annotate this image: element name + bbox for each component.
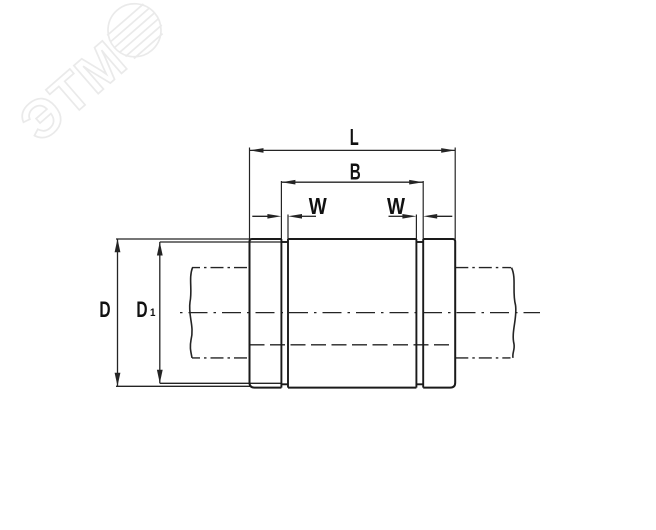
svg-text:W: W	[309, 193, 327, 219]
svg-text:B: B	[350, 158, 361, 184]
svg-text:L: L	[350, 124, 359, 150]
svg-text:ЭТМ: ЭТМ	[9, 30, 138, 154]
svg-text:W: W	[387, 193, 405, 219]
svg-text:1: 1	[150, 307, 156, 319]
svg-text:D: D	[99, 297, 110, 322]
svg-text:D: D	[136, 297, 147, 322]
